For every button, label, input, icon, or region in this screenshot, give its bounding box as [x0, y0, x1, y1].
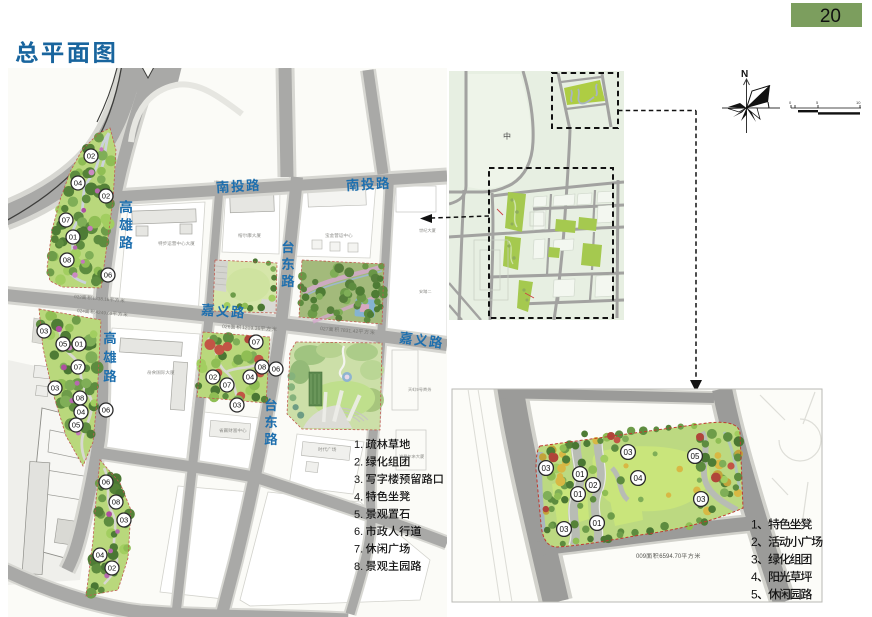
- svg-text:0: 0: [789, 100, 792, 105]
- svg-text:03: 03: [697, 495, 706, 504]
- svg-text:04: 04: [77, 408, 85, 417]
- svg-text:03: 03: [233, 401, 241, 410]
- svg-text:4.: 4.: [354, 491, 363, 503]
- svg-text:N: N: [741, 69, 748, 80]
- svg-text:05: 05: [72, 421, 80, 430]
- svg-text:08: 08: [76, 394, 84, 403]
- svg-text:3.: 3.: [354, 474, 363, 486]
- svg-text:03: 03: [560, 525, 569, 534]
- svg-text:08: 08: [258, 363, 266, 372]
- svg-text:03: 03: [624, 448, 633, 457]
- svg-text:04: 04: [74, 179, 82, 188]
- svg-text:06: 06: [102, 478, 110, 487]
- svg-text:02: 02: [589, 481, 598, 490]
- svg-text:01: 01: [69, 233, 77, 242]
- svg-text:1: 1: [751, 518, 758, 532]
- svg-text:06: 06: [104, 271, 112, 280]
- svg-text:05: 05: [59, 340, 67, 349]
- svg-text:01: 01: [574, 490, 583, 499]
- svg-text:5.: 5.: [354, 509, 363, 521]
- svg-text:08: 08: [63, 256, 71, 265]
- svg-text:4: 4: [751, 570, 758, 584]
- svg-text:01: 01: [75, 340, 83, 349]
- svg-text:07: 07: [62, 216, 70, 225]
- svg-text:03: 03: [51, 384, 59, 393]
- svg-text:2.: 2.: [354, 457, 363, 469]
- svg-text:01: 01: [593, 519, 602, 528]
- svg-text:8.: 8.: [354, 561, 363, 573]
- svg-text:10: 10: [856, 100, 861, 105]
- svg-text:05: 05: [691, 452, 700, 461]
- svg-text:20: 20: [820, 6, 841, 27]
- svg-text:5: 5: [751, 588, 758, 602]
- svg-text:02: 02: [102, 192, 110, 201]
- svg-text:08: 08: [112, 498, 120, 507]
- svg-text:5: 5: [816, 100, 819, 105]
- svg-text:03: 03: [542, 464, 551, 473]
- svg-text:7.: 7.: [354, 544, 363, 556]
- svg-text:04: 04: [96, 551, 104, 560]
- svg-text:01: 01: [576, 470, 585, 479]
- svg-text:07: 07: [74, 363, 82, 372]
- svg-text:02: 02: [87, 152, 95, 161]
- svg-text:6.: 6.: [354, 526, 363, 538]
- svg-text:04: 04: [246, 373, 254, 382]
- svg-text:03: 03: [40, 327, 48, 336]
- svg-text:1.: 1.: [354, 439, 363, 451]
- svg-text:02: 02: [209, 373, 217, 382]
- svg-text:6: 6: [257, 326, 260, 332]
- svg-text:2: 2: [751, 535, 758, 549]
- svg-text:07: 07: [252, 338, 260, 347]
- svg-text:06: 06: [272, 365, 280, 374]
- svg-text:07: 07: [223, 381, 231, 390]
- svg-text:3: 3: [751, 553, 758, 567]
- svg-text:6: 6: [227, 324, 230, 330]
- svg-text:04: 04: [634, 474, 643, 483]
- svg-text:03: 03: [120, 516, 128, 525]
- svg-text:02: 02: [108, 564, 116, 573]
- svg-text:06: 06: [102, 406, 110, 415]
